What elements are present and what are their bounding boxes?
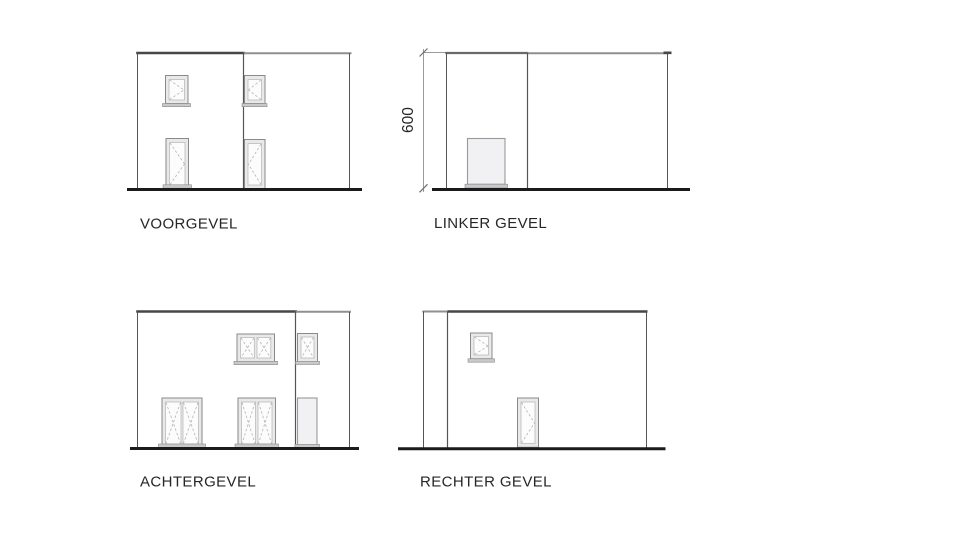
elevation-voorgevel: VOORGEVEL [127,53,362,233]
dimension-value-600: 600 [400,107,417,133]
achtergevel-door-opening-right [295,398,320,448]
linker-gevel-door-opening [465,139,508,189]
drawing-sheet: VOORGEVEL 600 LINKER GEVEL [0,0,960,548]
achtergevel-small-window [296,334,320,365]
elevation-achtergevel: ACHTERGEVEL [130,312,359,491]
rechter-gevel-door [518,398,539,447]
rechter-gevel-window [468,333,495,362]
elevation-rechter-gevel: RECHTER GEVEL [398,312,666,491]
voorgevel-window-upper-right [242,76,267,107]
achtergevel-double-door-middle [235,398,279,448]
label-achtergevel: ACHTERGEVEL [140,474,256,491]
linker-gevel-height-dimension: 600 [400,49,446,193]
achtergevel-double-door-left [159,398,206,448]
elevation-drawing-canvas: VOORGEVEL 600 LINKER GEVEL [0,0,960,548]
label-linker-gevel: LINKER GEVEL [434,215,547,232]
label-rechter-gevel: RECHTER GEVEL [420,474,552,491]
voorgevel-door-left [163,139,192,189]
voorgevel-door-right [245,140,266,189]
achtergevel-double-window [234,334,278,365]
label-voorgevel: VOORGEVEL [140,216,238,233]
elevation-linker-gevel: 600 LINKER GEVEL [400,49,690,233]
voorgevel-window-upper-left [163,76,191,107]
